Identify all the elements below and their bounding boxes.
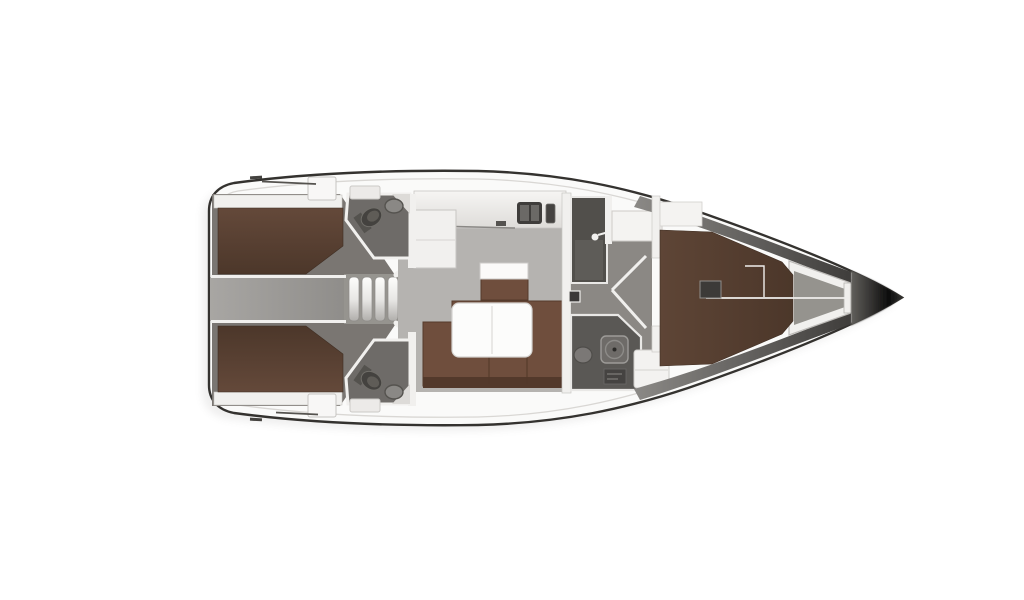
- stove-icon: [546, 204, 555, 223]
- sink-basin: [520, 205, 529, 221]
- shower-drain: [613, 348, 617, 352]
- nightstand: [700, 281, 721, 298]
- divider-wall: [605, 196, 612, 244]
- step-tread: [388, 277, 398, 321]
- galley-sink-icon: [517, 202, 542, 224]
- bulkhead-upper: [652, 196, 660, 258]
- deck-hatch: [308, 177, 336, 200]
- sink-icon: [385, 199, 403, 213]
- shower-room-floor: [575, 240, 603, 280]
- bulkhead-lower: [652, 326, 660, 352]
- switch-panel: [569, 291, 580, 302]
- sink-icon: [385, 385, 403, 399]
- control-panel: [604, 369, 626, 384]
- galley-l-cabinet: [414, 210, 456, 268]
- sink-basin: [531, 205, 539, 221]
- galley-item: [496, 221, 506, 226]
- door-handle-icon: [592, 234, 599, 241]
- shelf: [660, 202, 702, 226]
- step-tread: [362, 277, 372, 321]
- deck-hatch: [350, 186, 380, 199]
- step-tread: [349, 277, 359, 321]
- corridor-floor: [210, 277, 346, 321]
- step-tread: [375, 277, 385, 321]
- shower-icon: [601, 336, 628, 363]
- yacht-floor-plan-page: [0, 0, 1024, 600]
- deck-hatch: [350, 399, 380, 412]
- yacht-floor-plan: [0, 0, 1024, 600]
- stool-seat: [481, 278, 528, 300]
- bow-cone: [851, 271, 902, 326]
- cleat: [250, 176, 262, 180]
- cleat: [250, 418, 262, 422]
- stool-top: [480, 263, 528, 279]
- sink-icon: [574, 347, 592, 363]
- settee-base-shadow: [423, 377, 565, 388]
